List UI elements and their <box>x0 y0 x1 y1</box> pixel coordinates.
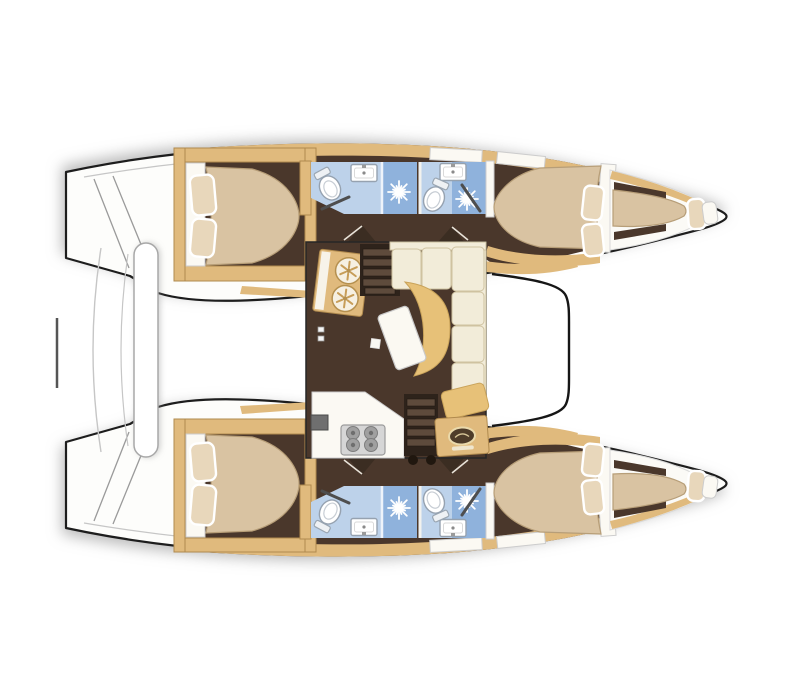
burner-icon <box>347 427 360 440</box>
stair-step <box>407 399 435 406</box>
brand-badge-icon <box>448 427 475 446</box>
catamaran-floor-plan <box>0 0 800 700</box>
stair-step <box>365 288 395 294</box>
door-handle <box>318 336 324 341</box>
grab-handle <box>408 455 418 465</box>
stair-step <box>407 409 435 416</box>
fridge-unit <box>435 415 490 457</box>
grab-handle <box>426 455 436 465</box>
cockpit-line <box>121 254 128 446</box>
burner-icon <box>347 439 360 452</box>
table-leg <box>370 338 380 348</box>
burner-icon <box>365 439 378 452</box>
settee-cushion <box>452 247 484 291</box>
burner-icon <box>365 427 378 440</box>
door-handle <box>318 327 324 332</box>
aft-bench <box>134 243 158 457</box>
stair-step <box>407 439 435 446</box>
cockpit-line <box>93 248 101 452</box>
settee-cushion <box>422 248 451 289</box>
stair-step <box>407 429 435 436</box>
stair-step <box>407 419 435 426</box>
settee-cushion <box>452 326 484 362</box>
galley-sink <box>311 415 328 430</box>
forward-crossbeam <box>492 274 569 426</box>
saloon <box>306 242 490 465</box>
stairs-to-starboard-hull <box>404 394 438 465</box>
settee-cushion <box>452 292 484 325</box>
